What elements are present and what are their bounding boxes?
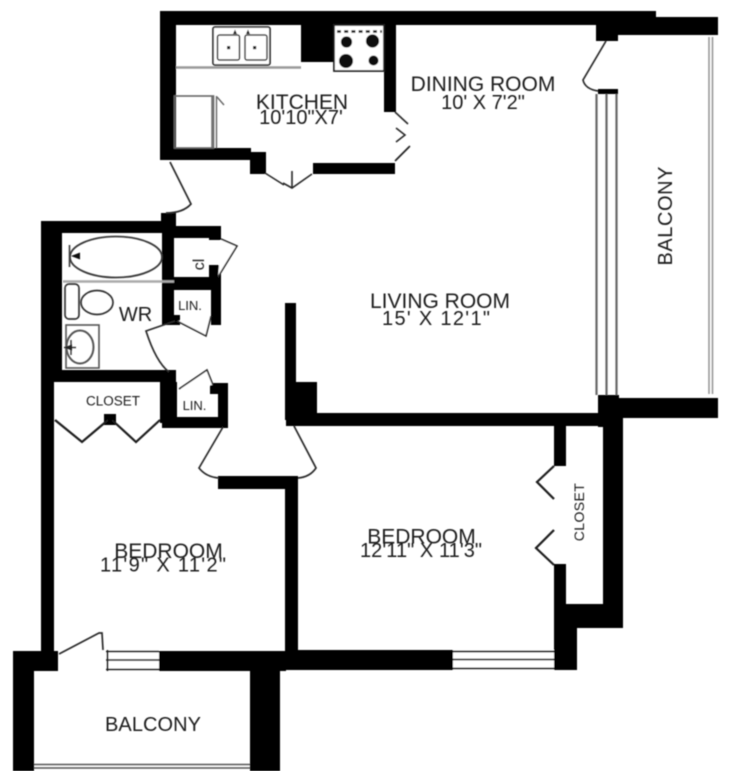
svg-text:WR: WR <box>119 304 152 326</box>
svg-text:BALCONY: BALCONY <box>105 714 201 736</box>
svg-text:LIN.: LIN. <box>178 298 202 313</box>
svg-text:LIN.: LIN. <box>183 398 207 413</box>
svg-text:BALCONY: BALCONY <box>655 167 677 266</box>
svg-text:10'10"X7': 10'10"X7' <box>259 107 343 129</box>
svg-text:10' X 7'2": 10' X 7'2" <box>441 92 525 114</box>
svg-text:15' X 12'1": 15' X 12'1" <box>382 308 490 330</box>
svg-text:12'11" X 11'3": 12'11" X 11'3" <box>360 540 482 562</box>
svg-text:CLOSET: CLOSET <box>571 483 587 541</box>
svg-text:cl: cl <box>191 259 208 271</box>
svg-text:11'9" X 11'2": 11'9" X 11'2" <box>100 555 226 577</box>
svg-text:CLOSET: CLOSET <box>86 394 140 409</box>
